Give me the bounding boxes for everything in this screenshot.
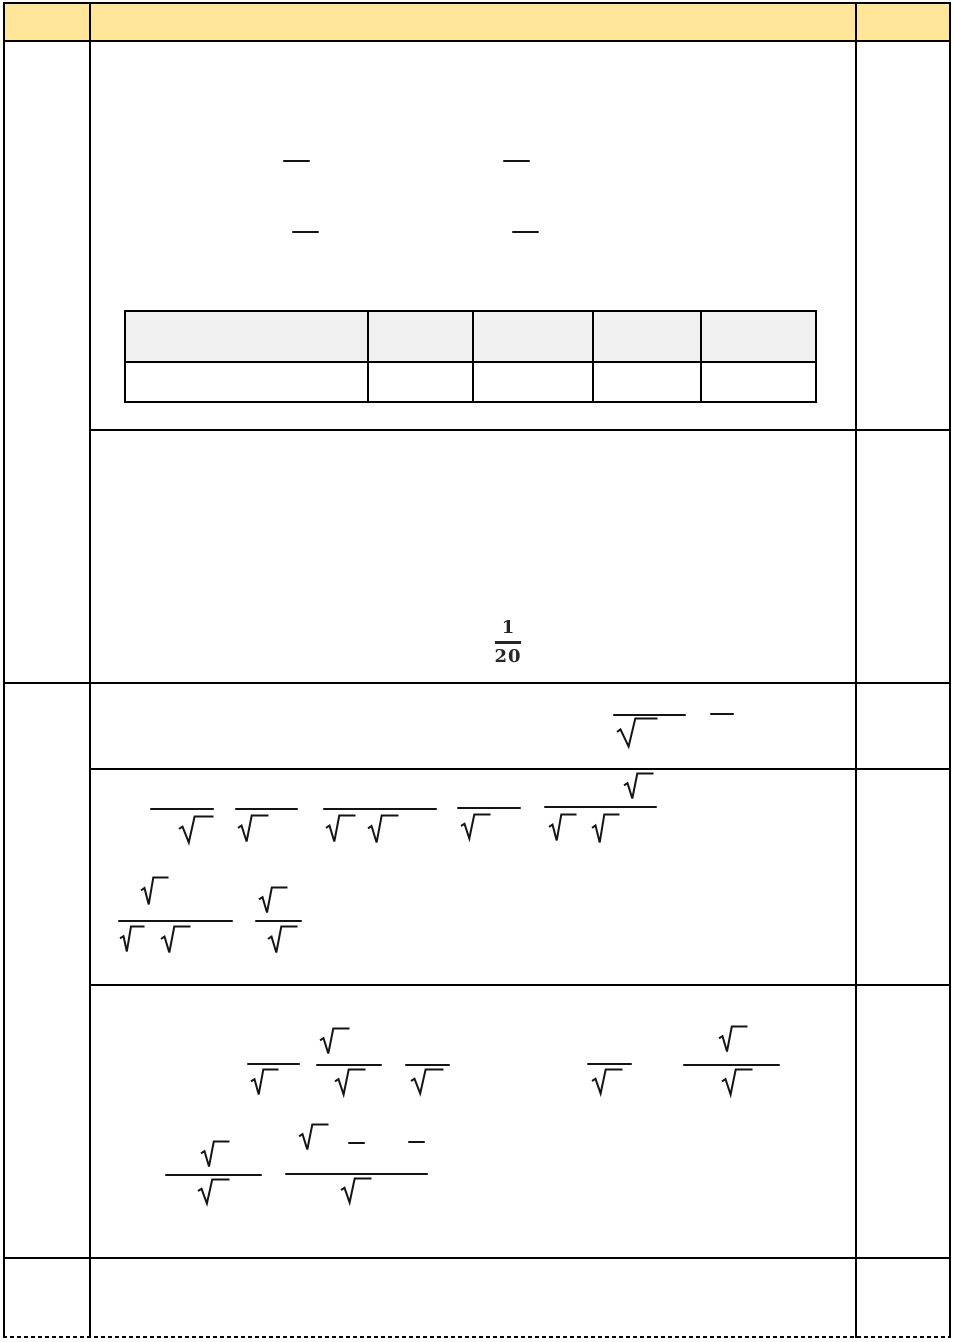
radical-sign-icon [119, 925, 145, 953]
fraction-vinculum [255, 920, 302, 922]
minus-dash [408, 1141, 425, 1143]
radical-sign-icon [258, 886, 288, 914]
fraction-vinculum [587, 1063, 632, 1065]
question-3-body-cell [91, 1259, 853, 1336]
radical-sign-icon [319, 1027, 350, 1055]
fraction-vinculum [235, 808, 298, 810]
fraction-vinculum [512, 231, 539, 233]
radical-sign-icon [367, 814, 399, 844]
worksheet-page: 1 20 [0, 0, 954, 1342]
radical-sign-icon [267, 925, 298, 954]
page-cut-dashed-line [3, 1336, 951, 1338]
answer-table-v4 [700, 310, 702, 403]
radical-sign-icon [340, 1177, 372, 1204]
fraction-vinculum [457, 807, 521, 809]
fraction-vinculum [118, 920, 233, 922]
radical-sign-icon [178, 815, 214, 844]
question-1-number-cell [4, 41, 89, 682]
fraction-one-twentieth: 1 20 [482, 619, 534, 666]
radical-sign-icon [140, 876, 169, 906]
radical-sign-icon [200, 1140, 230, 1168]
answer-table-v2 [472, 310, 474, 403]
fraction-numerator: 1 [482, 619, 534, 641]
radical-sign-icon [410, 1068, 444, 1095]
answer-table-top [124, 310, 817, 312]
question-2a-body-cell [91, 684, 853, 768]
header-cell-number [4, 3, 89, 40]
answer-table-header-row [124, 310, 817, 361]
radical-sign-icon [616, 717, 658, 748]
question-2-number-cell [4, 684, 89, 1257]
question-3-number-cell [4, 1259, 89, 1336]
radical-sign-icon [325, 814, 356, 843]
fraction-vinculum [292, 231, 319, 233]
answer-table-mid [124, 361, 817, 363]
question-2b-body-cell [91, 770, 853, 984]
answer-table-v0 [124, 310, 126, 403]
answer-table-bottom [124, 401, 817, 403]
fraction-vinculum [247, 1063, 300, 1065]
radical-sign-icon [718, 1025, 748, 1053]
fraction-vinculum [285, 1173, 428, 1175]
header-cell-marks [857, 3, 950, 40]
fraction-vinculum [544, 806, 657, 808]
radical-sign-icon [623, 772, 654, 800]
fraction-vinculum [165, 1174, 262, 1176]
radical-sign-icon [160, 925, 191, 954]
radical-sign-icon [250, 1068, 279, 1096]
fraction-denominator: 20 [482, 644, 534, 666]
answer-table-v5 [815, 310, 817, 403]
radical-sign-icon [197, 1178, 230, 1205]
fraction-vinculum [683, 1064, 780, 1066]
radical-sign-icon [548, 813, 577, 842]
fraction-vinculum [323, 808, 437, 810]
minus-dash [348, 1142, 365, 1144]
fraction-vinculum [283, 160, 310, 162]
radical-sign-icon [237, 814, 269, 843]
radical-sign-icon [591, 813, 620, 844]
grid-line-right-border [949, 2, 951, 1338]
fraction-vinculum [150, 808, 214, 810]
radical-sign-icon [298, 1123, 329, 1151]
answer-table-v3 [592, 310, 594, 403]
radical-sign-icon [334, 1068, 366, 1096]
fraction-vinculum [316, 1064, 382, 1066]
header-cell-question [91, 3, 853, 40]
fraction-vinculum [613, 714, 686, 716]
radical-sign-icon [721, 1068, 753, 1096]
fraction-vinculum [503, 160, 530, 162]
fraction-vinculum [405, 1064, 450, 1066]
answer-table [124, 310, 817, 403]
question-1b-body-cell [91, 431, 853, 682]
marks-column-cells [857, 41, 949, 1336]
fraction-vinculum [710, 713, 734, 715]
answer-table-v1 [367, 310, 369, 403]
radical-sign-icon [460, 813, 491, 840]
grid-line-top-border [3, 2, 951, 4]
radical-sign-icon [591, 1068, 623, 1095]
